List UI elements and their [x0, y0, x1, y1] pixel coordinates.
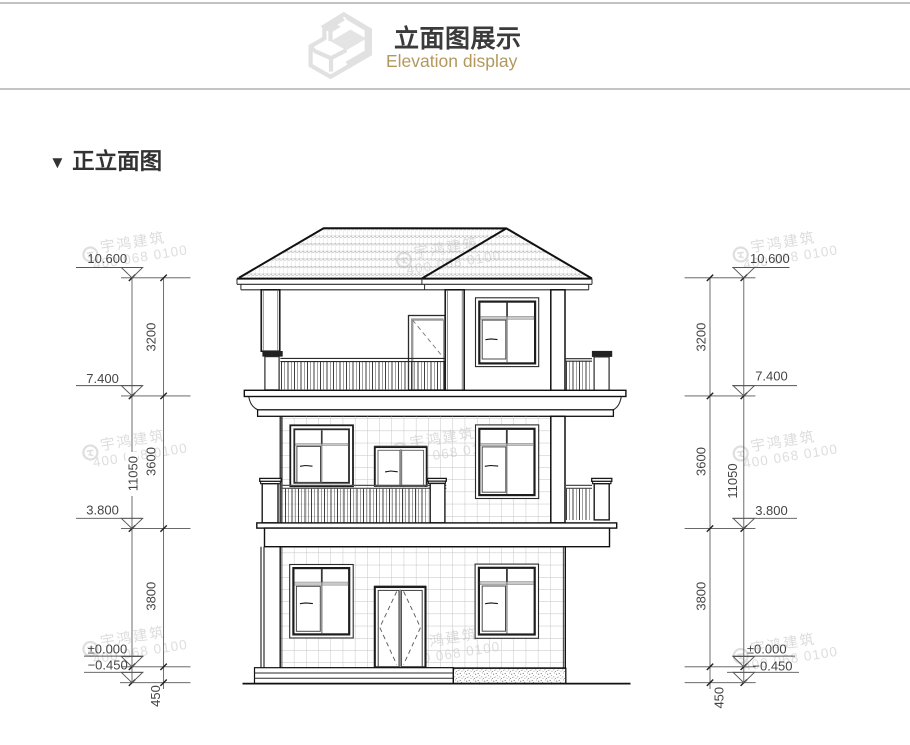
svg-text:11050: 11050 [126, 456, 141, 491]
svg-text:3600: 3600 [693, 447, 708, 476]
svg-text:10.600: 10.600 [750, 251, 790, 266]
svg-text:3800: 3800 [693, 582, 708, 611]
svg-text:7.400: 7.400 [755, 369, 788, 384]
svg-text:±0.000: ±0.000 [88, 642, 128, 657]
svg-text:3200: 3200 [693, 323, 708, 352]
svg-text:3.800: 3.800 [755, 503, 788, 518]
svg-text:3200: 3200 [144, 323, 159, 352]
svg-text:7.400: 7.400 [86, 371, 119, 386]
svg-text:3600: 3600 [144, 447, 159, 476]
svg-text:3800: 3800 [144, 582, 159, 611]
svg-text:11050: 11050 [725, 463, 740, 498]
svg-text:±0.000: ±0.000 [747, 642, 787, 657]
svg-text:10.600: 10.600 [87, 251, 127, 266]
svg-text:450: 450 [148, 685, 163, 707]
svg-text:450: 450 [711, 687, 726, 709]
svg-text:−0.450: −0.450 [88, 658, 128, 673]
svg-text:−0.450: −0.450 [752, 659, 792, 674]
svg-text:3.800: 3.800 [86, 503, 119, 518]
